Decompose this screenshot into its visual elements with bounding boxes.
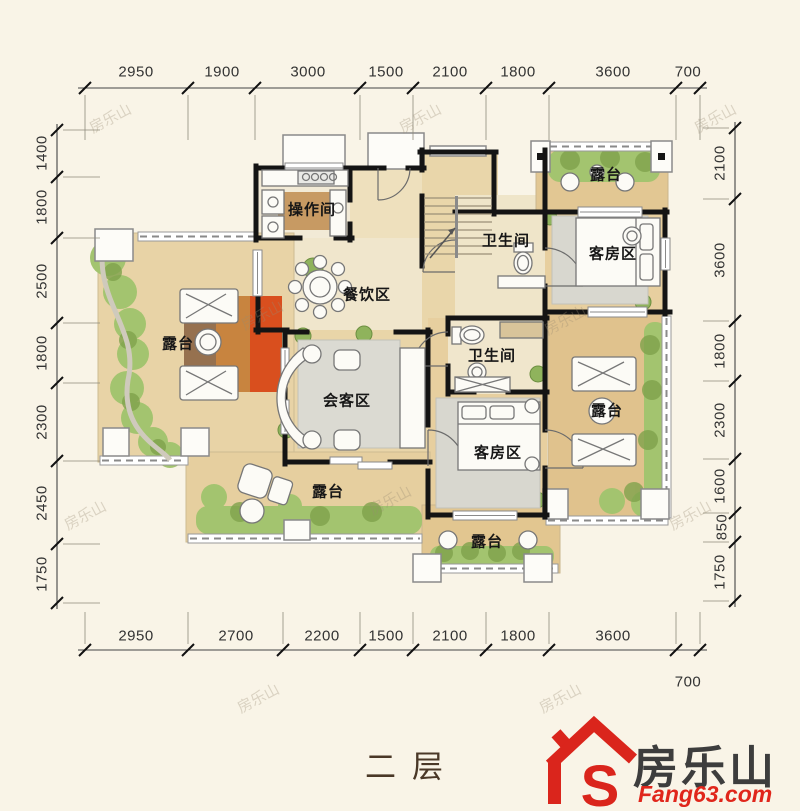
- dim-top-3: 3000: [290, 64, 325, 81]
- room-label-terrace-top-right: 露台: [590, 164, 622, 185]
- logo-monogram: S: [581, 754, 620, 811]
- room-label-terrace-bottom-mid: 露台: [471, 531, 503, 552]
- dim-left-2: 1800: [34, 189, 51, 224]
- room-label-bath-2: 卫生间: [468, 345, 516, 366]
- dim-top-4: 1500: [368, 64, 403, 81]
- dim-top-1: 2950: [118, 64, 153, 81]
- dim-bottom-offset: 700: [675, 674, 702, 691]
- floor-title: 二层: [365, 742, 459, 787]
- room-label-living: 会客区: [323, 390, 371, 411]
- dim-left-3: 2500: [34, 263, 51, 298]
- dim-top-6: 1800: [500, 64, 535, 81]
- dim-bottom-3: 2200: [304, 628, 339, 645]
- dim-right-3: 1800: [712, 333, 729, 368]
- dim-right-2: 3600: [712, 242, 729, 277]
- dim-top-7: 3600: [595, 64, 630, 81]
- room-label-guest-1: 客房区: [589, 243, 637, 264]
- dim-bottom-7: 3600: [595, 628, 630, 645]
- dim-bottom-2: 2700: [218, 628, 253, 645]
- dim-right-1: 2100: [712, 145, 729, 180]
- dim-right-6: 850: [714, 514, 731, 541]
- dim-top-8: 700: [675, 64, 702, 81]
- dim-bottom-4: 1500: [368, 628, 403, 645]
- dim-left-7: 1750: [34, 556, 51, 591]
- room-label-guest-2: 客房区: [474, 442, 522, 463]
- room-label-terrace-left: 露台: [162, 333, 194, 354]
- dim-left-4: 1800: [34, 335, 51, 370]
- dim-right-5: 1600: [712, 468, 729, 503]
- dim-left-6: 2450: [34, 485, 51, 520]
- dim-bottom-6: 1800: [500, 628, 535, 645]
- floor-plan-page: S 房乐山 房乐山 房乐山 房乐山 房乐山 房乐山 房乐山 房乐山 房乐山 房乐…: [0, 0, 800, 811]
- dim-right-4: 2300: [712, 402, 729, 437]
- brand-domain: Fang63.com: [638, 781, 772, 808]
- dim-right-7: 1750: [712, 554, 729, 589]
- room-label-terrace-bottom: 露台: [312, 481, 344, 502]
- dim-top-2: 1900: [204, 64, 239, 81]
- dim-top-5: 2100: [432, 64, 467, 81]
- room-label-dining: 餐饮区: [343, 284, 391, 305]
- dim-bottom-5: 2100: [432, 628, 467, 645]
- room-label-kitchen: 操作间: [288, 199, 336, 220]
- dim-left-5: 2300: [34, 404, 51, 439]
- house-logo-icon: S: [548, 724, 633, 811]
- room-label-terrace-right: 露台: [591, 400, 623, 421]
- dim-left-1: 1400: [34, 135, 51, 170]
- dim-bottom-1: 2950: [118, 628, 153, 645]
- room-label-bath-1: 卫生间: [482, 230, 530, 251]
